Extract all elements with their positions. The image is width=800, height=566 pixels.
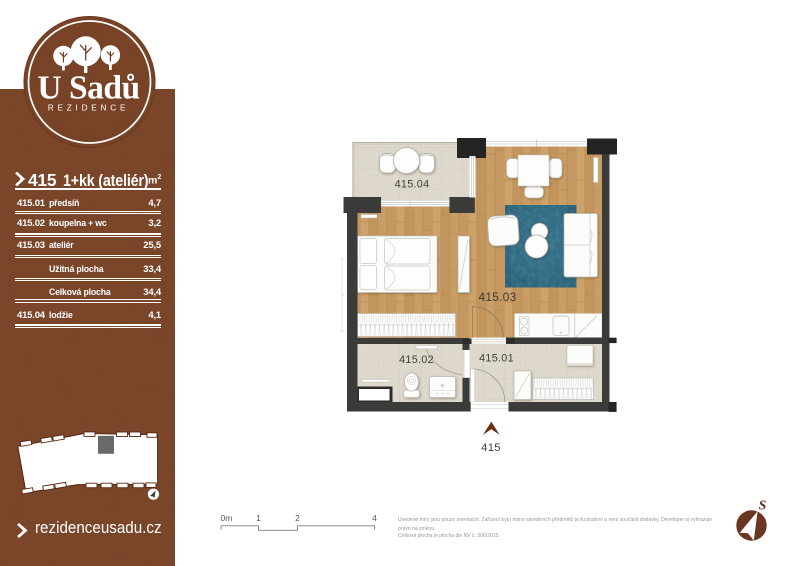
- svg-text:S: S: [759, 498, 767, 513]
- svg-text:415.03: 415.03: [479, 290, 517, 304]
- svg-text:2: 2: [295, 513, 300, 523]
- svg-text:1: 1: [256, 513, 261, 523]
- svg-text:415.04: 415.04: [395, 179, 430, 191]
- svg-text:0m: 0m: [221, 513, 233, 523]
- svg-text:415: 415: [481, 442, 501, 454]
- svg-text:415.02: 415.02: [399, 354, 434, 366]
- svg-text:415.01: 415.01: [479, 353, 514, 365]
- svg-text:4: 4: [372, 513, 377, 523]
